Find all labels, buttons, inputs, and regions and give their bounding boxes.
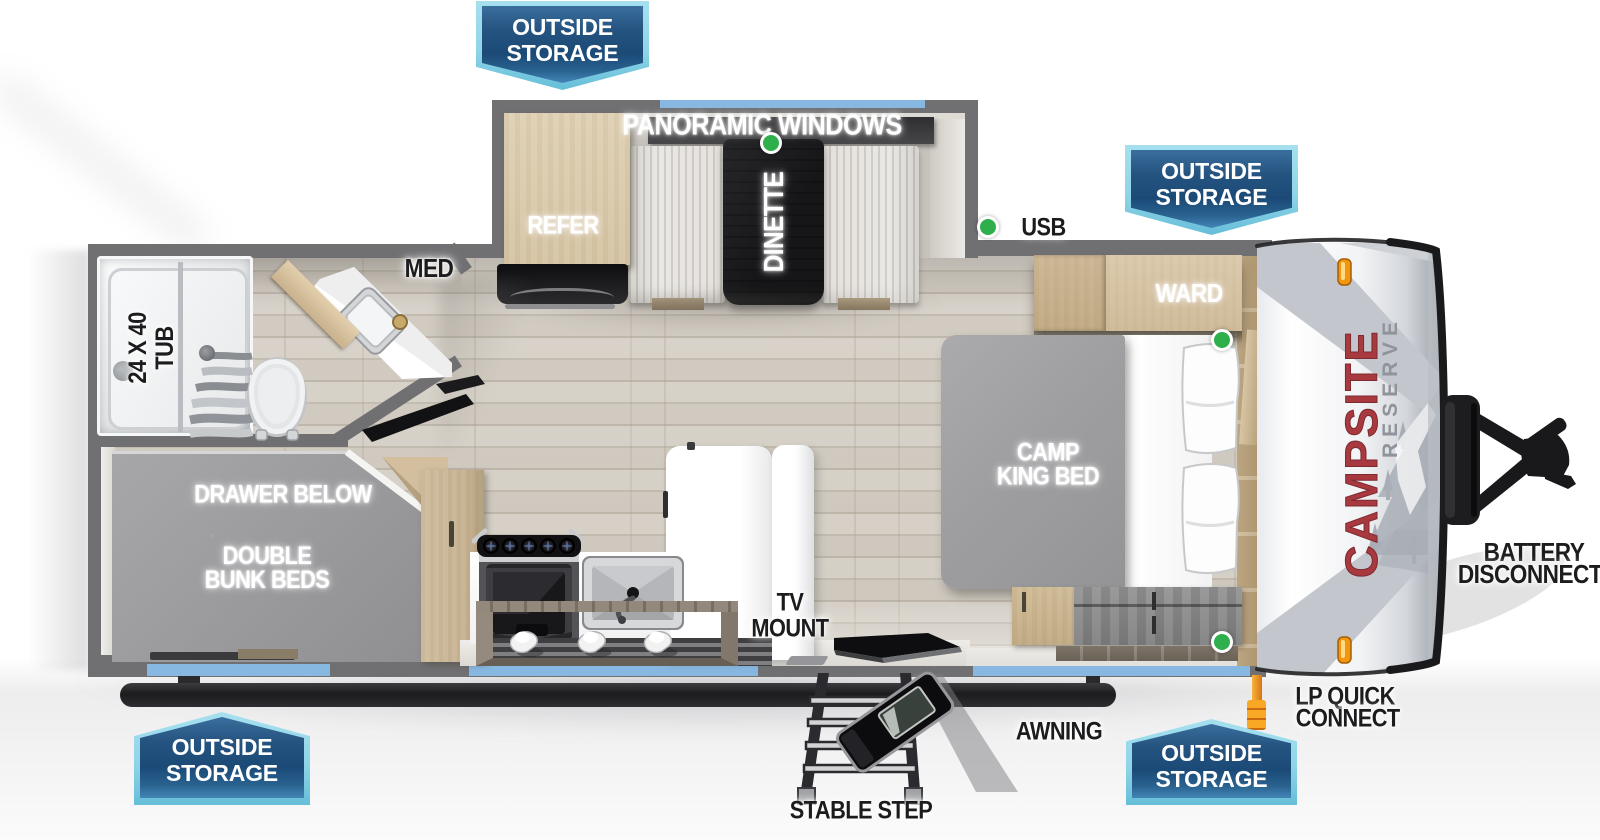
svg-text:RESERVE: RESERVE: [1379, 316, 1402, 458]
